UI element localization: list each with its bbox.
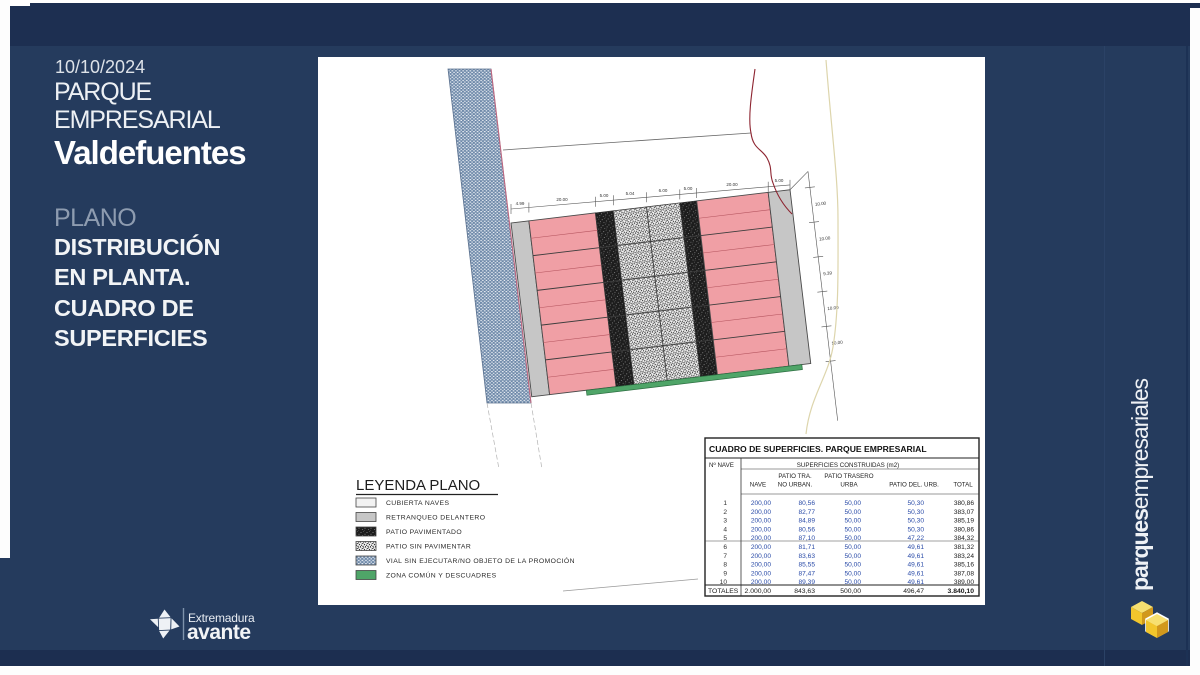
svg-text:RETRANQUEO DELANTERO: RETRANQUEO DELANTERO xyxy=(386,515,485,522)
svg-text:49,61: 49,61 xyxy=(907,553,924,560)
svg-text:PATIO SIN PAVIMENTAR: PATIO SIN PAVIMENTAR xyxy=(386,544,471,551)
svg-text:200,00: 200,00 xyxy=(751,570,772,577)
svg-text:200,00: 200,00 xyxy=(751,500,772,507)
svg-text:NAVE: NAVE xyxy=(750,482,766,489)
svg-text:1: 1 xyxy=(723,500,727,507)
svg-text:PATIO TRASERO: PATIO TRASERO xyxy=(824,473,873,480)
svg-text:200,00: 200,00 xyxy=(751,553,772,560)
svg-text:50,00: 50,00 xyxy=(844,509,861,516)
svg-text:10.00: 10.00 xyxy=(815,201,827,207)
svg-text:5.04: 5.04 xyxy=(626,191,635,196)
svg-text:4: 4 xyxy=(723,526,727,533)
svg-text:50,30: 50,30 xyxy=(907,518,924,525)
svg-text:200,00: 200,00 xyxy=(751,544,772,551)
svg-text:50,00: 50,00 xyxy=(844,526,861,533)
svg-text:CUBIERTA NAVES: CUBIERTA NAVES xyxy=(386,500,449,507)
svg-text:PATIO DEL. URB.: PATIO DEL. URB. xyxy=(889,482,939,489)
svg-text:500,00: 500,00 xyxy=(840,588,861,595)
svg-text:85,55: 85,55 xyxy=(798,562,815,569)
svg-text:50,00: 50,00 xyxy=(844,562,861,569)
svg-text:200,00: 200,00 xyxy=(751,562,772,569)
svg-text:80,56: 80,56 xyxy=(798,500,815,507)
svg-text:50,00: 50,00 xyxy=(844,570,861,577)
svg-text:87,47: 87,47 xyxy=(798,570,815,577)
svg-text:496,47: 496,47 xyxy=(903,588,924,595)
svg-text:84,89: 84,89 xyxy=(798,518,815,525)
svg-text:CUADRO DE SUPERFICIES. PARQUE: CUADRO DE SUPERFICIES. PARQUE EMPRESARIA… xyxy=(709,444,927,454)
svg-text:387,08: 387,08 xyxy=(954,570,975,577)
svg-text:83,63: 83,63 xyxy=(798,553,815,560)
svg-text:PATIO TRA.: PATIO TRA. xyxy=(778,473,812,480)
svg-text:6.00: 6.00 xyxy=(659,188,668,193)
svg-text:200,00: 200,00 xyxy=(751,526,772,533)
svg-text:SUPERFICIES CONSTRUIDAS (m2): SUPERFICIES CONSTRUIDAS (m2) xyxy=(797,462,899,469)
svg-text:383,07: 383,07 xyxy=(954,509,975,516)
svg-text:49,61: 49,61 xyxy=(907,544,924,551)
svg-text:7: 7 xyxy=(723,553,727,560)
svg-text:9.39: 9.39 xyxy=(823,270,833,276)
svg-text:50,30: 50,30 xyxy=(907,509,924,516)
svg-text:50,00: 50,00 xyxy=(844,500,861,507)
svg-text:380,86: 380,86 xyxy=(954,526,975,533)
svg-text:5.00: 5.00 xyxy=(600,193,609,198)
svg-text:2.000,00: 2.000,00 xyxy=(745,588,772,595)
svg-text:49,61: 49,61 xyxy=(907,562,924,569)
svg-text:2: 2 xyxy=(723,509,727,516)
svg-text:200,00: 200,00 xyxy=(751,518,772,525)
svg-text:20.00: 20.00 xyxy=(726,182,738,187)
svg-text:381,32: 381,32 xyxy=(954,544,975,551)
svg-text:82,77: 82,77 xyxy=(798,509,815,516)
svg-text:50,00: 50,00 xyxy=(844,553,861,560)
svg-text:200,00: 200,00 xyxy=(751,509,772,516)
svg-text:5.00: 5.00 xyxy=(775,178,784,183)
svg-text:VIAL SIN EJECUTAR/NO OBJETO DE: VIAL SIN EJECUTAR/NO OBJETO DE LA PROMOC… xyxy=(386,556,575,565)
svg-text:PATIO PAVIMENTADO: PATIO PAVIMENTADO xyxy=(386,529,462,536)
svg-text:10.00: 10.00 xyxy=(819,235,831,241)
svg-text:ZONA COMÚN Y DESCUADRES: ZONA COMÚN Y DESCUADRES xyxy=(386,571,497,580)
svg-text:5.00: 5.00 xyxy=(684,186,693,191)
svg-text:TOTAL: TOTAL xyxy=(953,482,973,489)
svg-text:81,71: 81,71 xyxy=(798,544,815,551)
svg-text:50,30: 50,30 xyxy=(907,500,924,507)
svg-text:20.00: 20.00 xyxy=(556,197,568,202)
svg-text:49,61: 49,61 xyxy=(907,570,924,577)
svg-text:3.840,10: 3.840,10 xyxy=(948,588,975,595)
svg-text:Nº NAVE: Nº NAVE xyxy=(709,462,734,469)
svg-text:TOTALES: TOTALES xyxy=(708,588,739,595)
svg-text:NO URBAN.: NO URBAN. xyxy=(778,482,813,489)
svg-text:avante: avante xyxy=(187,621,251,644)
svg-text:50,00: 50,00 xyxy=(844,518,861,525)
svg-text:URBA: URBA xyxy=(840,482,858,489)
svg-text:4.99: 4.99 xyxy=(516,201,525,206)
svg-text:50,30: 50,30 xyxy=(907,526,924,533)
svg-text:6: 6 xyxy=(723,544,727,551)
svg-text:385,16: 385,16 xyxy=(954,562,975,569)
svg-text:50,00: 50,00 xyxy=(844,544,861,551)
svg-text:8: 8 xyxy=(723,562,727,569)
svg-text:LEYENDA PLANO: LEYENDA PLANO xyxy=(356,477,480,494)
svg-text:3: 3 xyxy=(723,518,727,525)
svg-text:385,19: 385,19 xyxy=(954,518,975,525)
svg-text:383,24: 383,24 xyxy=(954,553,975,560)
svg-text:843,63: 843,63 xyxy=(794,588,815,595)
svg-text:9: 9 xyxy=(723,570,727,577)
svg-text:80,56: 80,56 xyxy=(798,526,815,533)
svg-text:380,86: 380,86 xyxy=(954,500,975,507)
